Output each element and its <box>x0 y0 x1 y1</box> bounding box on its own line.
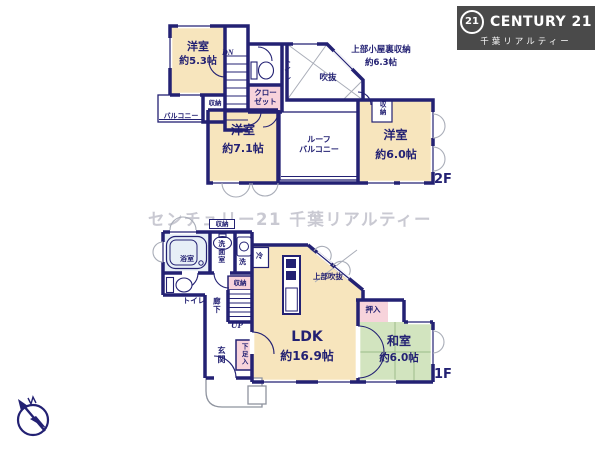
kitchen-icon <box>283 256 300 314</box>
balcony-label: バルコニー <box>158 112 204 121</box>
ldk-label-name: LDK <box>282 329 332 347</box>
stairs-down-label: DN <box>222 48 234 58</box>
washroom-label: 洗面室 <box>217 240 226 264</box>
roof-balcony-label: ルーフ バルコニー <box>294 135 344 155</box>
floor1-label: 1F <box>434 367 452 383</box>
washitsu-label-name: 和室 <box>384 334 414 349</box>
closet-label: クロー ゼット <box>249 88 282 107</box>
entrance-step <box>248 386 266 404</box>
room-label-yoshitsu60-size: 約6.0帖 <box>366 148 426 162</box>
logo-subtitle: 千葉リアルティー <box>480 35 571 47</box>
room-label-yoshitsu71-size: 約7.1帖 <box>213 142 273 156</box>
washer-icon <box>237 237 251 256</box>
logo-mark-circle: 21 <box>460 10 484 34</box>
century21-logo: 21 CENTURY 21 千葉リアルティー <box>457 6 595 50</box>
room-label-yoshitsu71-name: 洋室 <box>215 123 271 138</box>
logo-brand-text: CENTURY 21 <box>490 14 592 30</box>
storage-top-label: 収納 <box>209 219 235 229</box>
bathroom-label: 浴室 <box>174 255 200 264</box>
floor1-drawing <box>153 217 444 407</box>
floor2-label: 2F <box>434 172 452 188</box>
refrigerator-label: 冷 <box>256 252 263 261</box>
toilet-icon-1f <box>167 278 193 293</box>
toilet-2f-label: トイレ <box>283 58 292 82</box>
stairs-up-label: UP <box>231 320 243 331</box>
shoe-box-label: 下足入 <box>240 343 248 366</box>
genkan-label: 玄関 <box>216 346 226 364</box>
washer-label: 洗 <box>239 258 246 267</box>
storage-hall-label: 収納 <box>230 279 250 287</box>
room-label-yoshitsu53-name: 洋室 <box>172 40 224 54</box>
storage-2f-right-label: 収納 <box>378 101 386 116</box>
toilet-1f-label: トイレ <box>180 296 208 305</box>
hallway-label: 廊下 <box>212 297 221 314</box>
attic-label-name: 上部小屋裏収納 <box>346 45 416 56</box>
floor-plan-drawing <box>0 0 600 450</box>
floor-plan-page: センチュリー21 千葉リアルティー <box>0 0 600 450</box>
washitsu-label-size: 約6.0帖 <box>377 352 421 365</box>
attic-label-size: 約6.3帖 <box>360 58 402 69</box>
storage-2f-left-label: 収納 <box>204 99 226 107</box>
toilet-icon-2f <box>251 62 274 79</box>
compass-icon <box>18 397 48 435</box>
void-label: 吹抜 <box>314 73 342 84</box>
room-label-yoshitsu60-name: 洋室 <box>368 128 423 143</box>
oshiire-label: 押入 <box>360 305 386 314</box>
void-above-label: 上部吹抜 <box>310 272 346 281</box>
ldk-label-size: 約16.9帖 <box>276 349 338 364</box>
room-label-yoshitsu53-size: 約5.3帖 <box>168 56 228 69</box>
